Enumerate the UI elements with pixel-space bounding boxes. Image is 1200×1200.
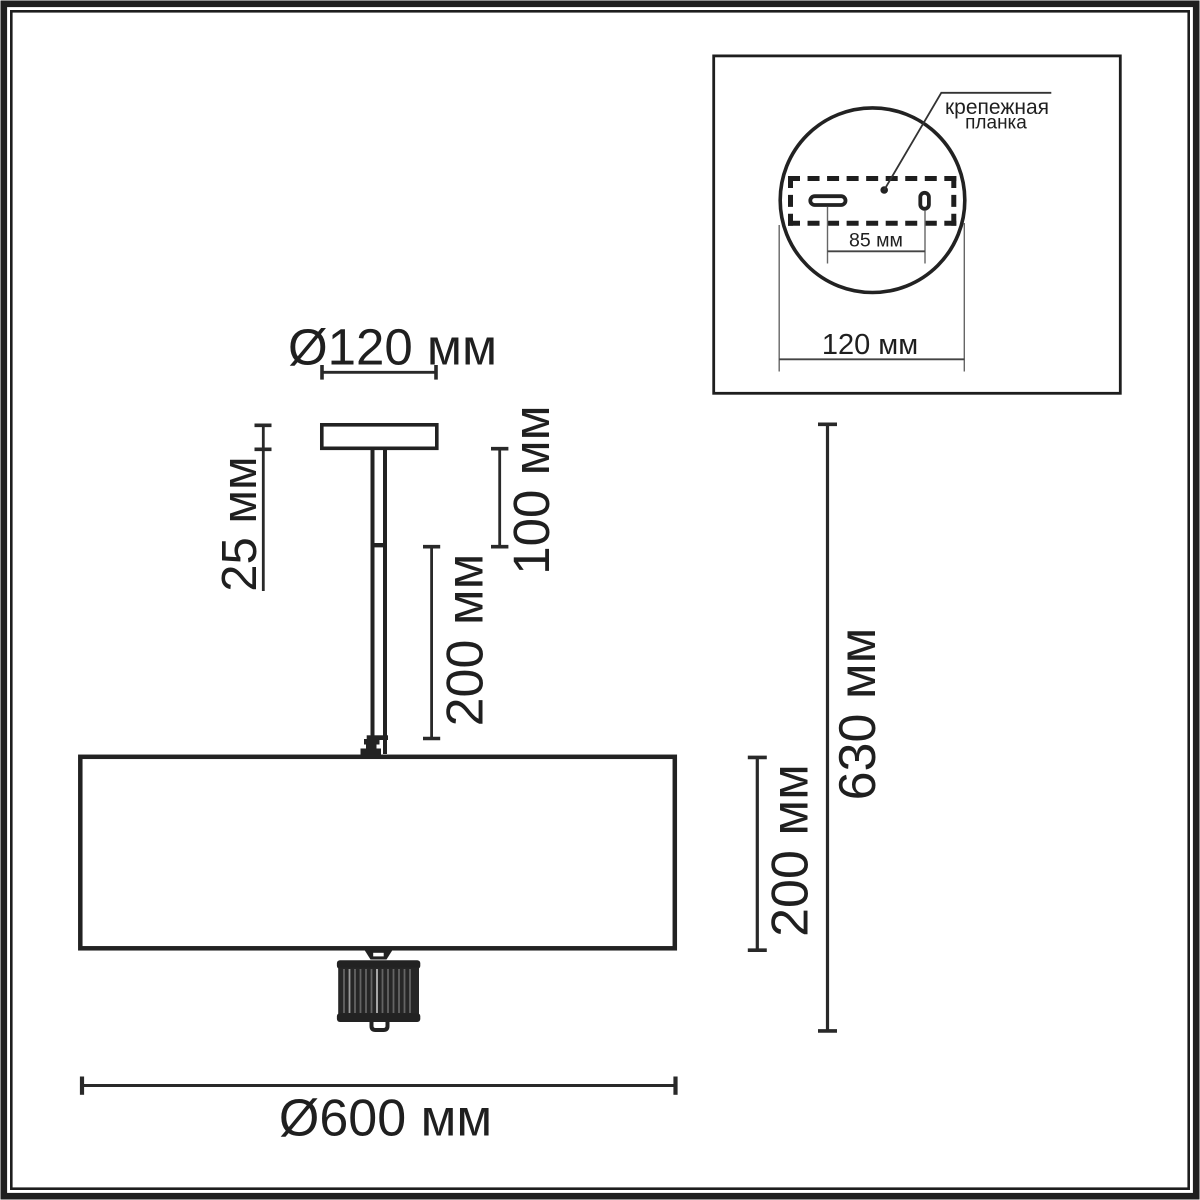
svg-text:630 мм: 630 мм (829, 628, 887, 801)
svg-text:планка: планка (965, 113, 1027, 134)
svg-text:200 мм: 200 мм (437, 554, 495, 727)
svg-text:85 мм: 85 мм (849, 230, 903, 252)
svg-text:Ø600 мм: Ø600 мм (279, 1090, 492, 1148)
svg-text:25 мм: 25 мм (213, 456, 267, 592)
svg-text:Ø120 мм: Ø120 мм (288, 319, 497, 376)
svg-text:200 мм: 200 мм (762, 764, 820, 937)
svg-text:100 мм: 100 мм (503, 405, 560, 574)
svg-text:120 мм: 120 мм (822, 329, 918, 361)
